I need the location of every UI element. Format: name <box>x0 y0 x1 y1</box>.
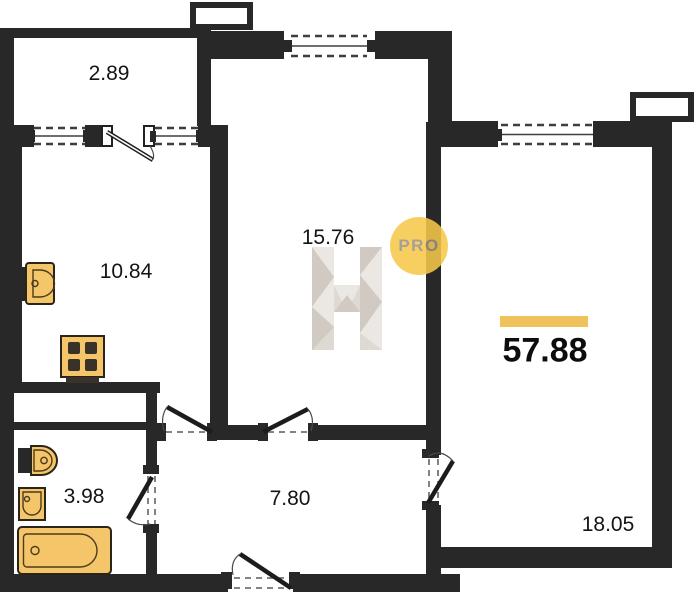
window-bedroom <box>493 125 602 144</box>
room-area-label-kitchen: 10.84 <box>100 260 153 284</box>
stove-icon <box>61 336 104 383</box>
window-kitchen <box>28 128 90 144</box>
door-living-room <box>258 409 318 441</box>
room-area-label-balcony: 2.89 <box>89 62 130 86</box>
total-area-underline <box>500 316 588 327</box>
bathtub-icon <box>18 527 111 574</box>
door-bathroom <box>128 465 159 533</box>
door-bedroom <box>422 449 453 510</box>
floor-plan: PRO 2.89 10.84 15.76 3.98 7.80 18.05 57.… <box>0 0 694 600</box>
door-balcony <box>102 126 154 160</box>
toilet-icon <box>18 446 57 475</box>
door-kitchen <box>156 407 217 441</box>
kitchen-sink-icon <box>20 263 55 304</box>
washbasin-icon <box>19 488 45 520</box>
window-balcony <box>150 128 204 144</box>
door-entrance <box>221 554 300 589</box>
room-area-label-bedroom: 18.05 <box>582 513 635 537</box>
pro-badge: PRO <box>390 217 448 275</box>
room-area-label-hallway: 7.80 <box>270 487 311 511</box>
room-area-label-living: 15.76 <box>302 226 355 250</box>
pro-badge-label: PRO <box>398 236 439 256</box>
window-living-room <box>283 36 376 56</box>
total-area-label: 57.88 <box>502 332 587 371</box>
room-area-label-bathroom: 3.98 <box>64 485 105 509</box>
